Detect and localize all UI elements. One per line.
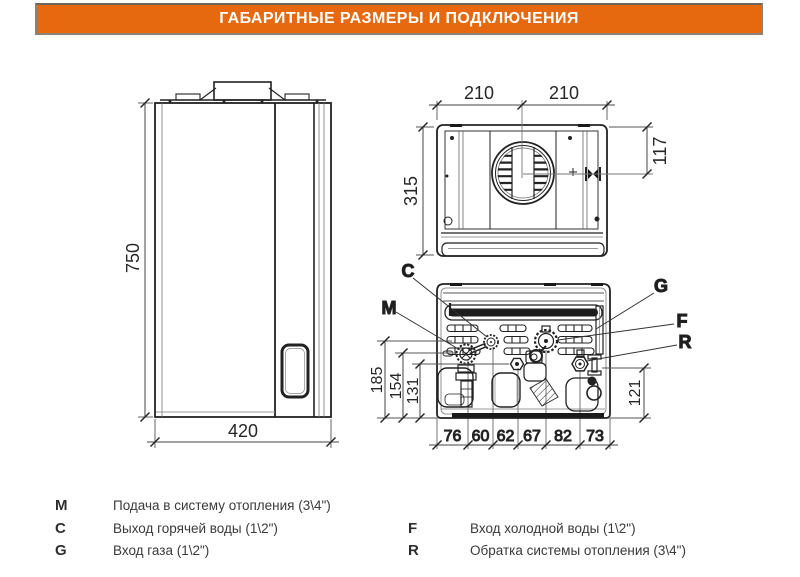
front-view: 750 420: [123, 82, 339, 448]
svg-text:210: 210: [464, 83, 494, 103]
valve-f: [524, 326, 558, 406]
legend-key-c: C: [55, 520, 66, 537]
svg-text:76: 76: [444, 428, 462, 445]
legend-desc-g: Вход газа (1\2"): [113, 543, 209, 558]
label-g: G: [654, 276, 668, 296]
drain-hex: [511, 358, 524, 369]
label-f: F: [677, 311, 688, 331]
dim-chain: 76 60 62 67 82 73: [429, 428, 618, 450]
svg-text:82: 82: [554, 428, 572, 445]
dim-width-420: 420: [147, 419, 339, 448]
svg-text:117: 117: [650, 137, 670, 166]
svg-text:154: 154: [388, 373, 405, 400]
label-m: M: [382, 298, 397, 318]
svg-text:750: 750: [123, 243, 143, 273]
svg-text:62: 62: [497, 428, 515, 445]
top-view: 210 210 315 117: [401, 83, 670, 260]
svg-text:131: 131: [405, 378, 422, 405]
boiler-dimensions-page: ГАБАРИТНЫЕ РАЗМЕРЫ И ПОДКЛЮЧЕНИЯ: [0, 0, 800, 577]
dim-height-750: 750: [123, 99, 153, 422]
center-tank: [492, 373, 520, 407]
legend-key-m: M: [55, 497, 68, 514]
svg-text:73: 73: [586, 428, 604, 445]
svg-text:60: 60: [472, 428, 490, 445]
svg-text:420: 420: [228, 421, 258, 441]
svg-text:121: 121: [627, 380, 644, 407]
svg-text:185: 185: [369, 367, 386, 394]
legend-desc-m: Подача в систему отопления (3\4"): [113, 498, 331, 513]
bottom-view: 185 154 131 121 76 60: [369, 261, 692, 450]
label-c: C: [402, 261, 415, 281]
technical-drawing: 750 420: [0, 0, 800, 577]
legend-key-f: F: [408, 520, 417, 537]
flue-collar-icon: [160, 82, 326, 103]
combustion-slot: [445, 305, 602, 320]
svg-text:210: 210: [549, 83, 579, 103]
label-r: R: [679, 332, 692, 352]
control-window: [282, 345, 308, 397]
dim-depth-315: 315: [401, 123, 434, 260]
svg-text:315: 315: [401, 176, 421, 206]
legend-key-g: G: [55, 542, 67, 559]
legend-desc-r: Обратка системы отопления (3\4"): [470, 543, 686, 558]
legend-key-r: R: [408, 542, 419, 559]
dim-left-heights: 185 154 131: [369, 337, 509, 423]
legend-desc-f: Вход холодной воды (1\2"): [470, 521, 636, 536]
svg-text:67: 67: [523, 428, 541, 445]
legend-desc-c: Выход горячей воды (1\2"): [113, 521, 278, 536]
flue-opening-icon: [492, 142, 554, 204]
